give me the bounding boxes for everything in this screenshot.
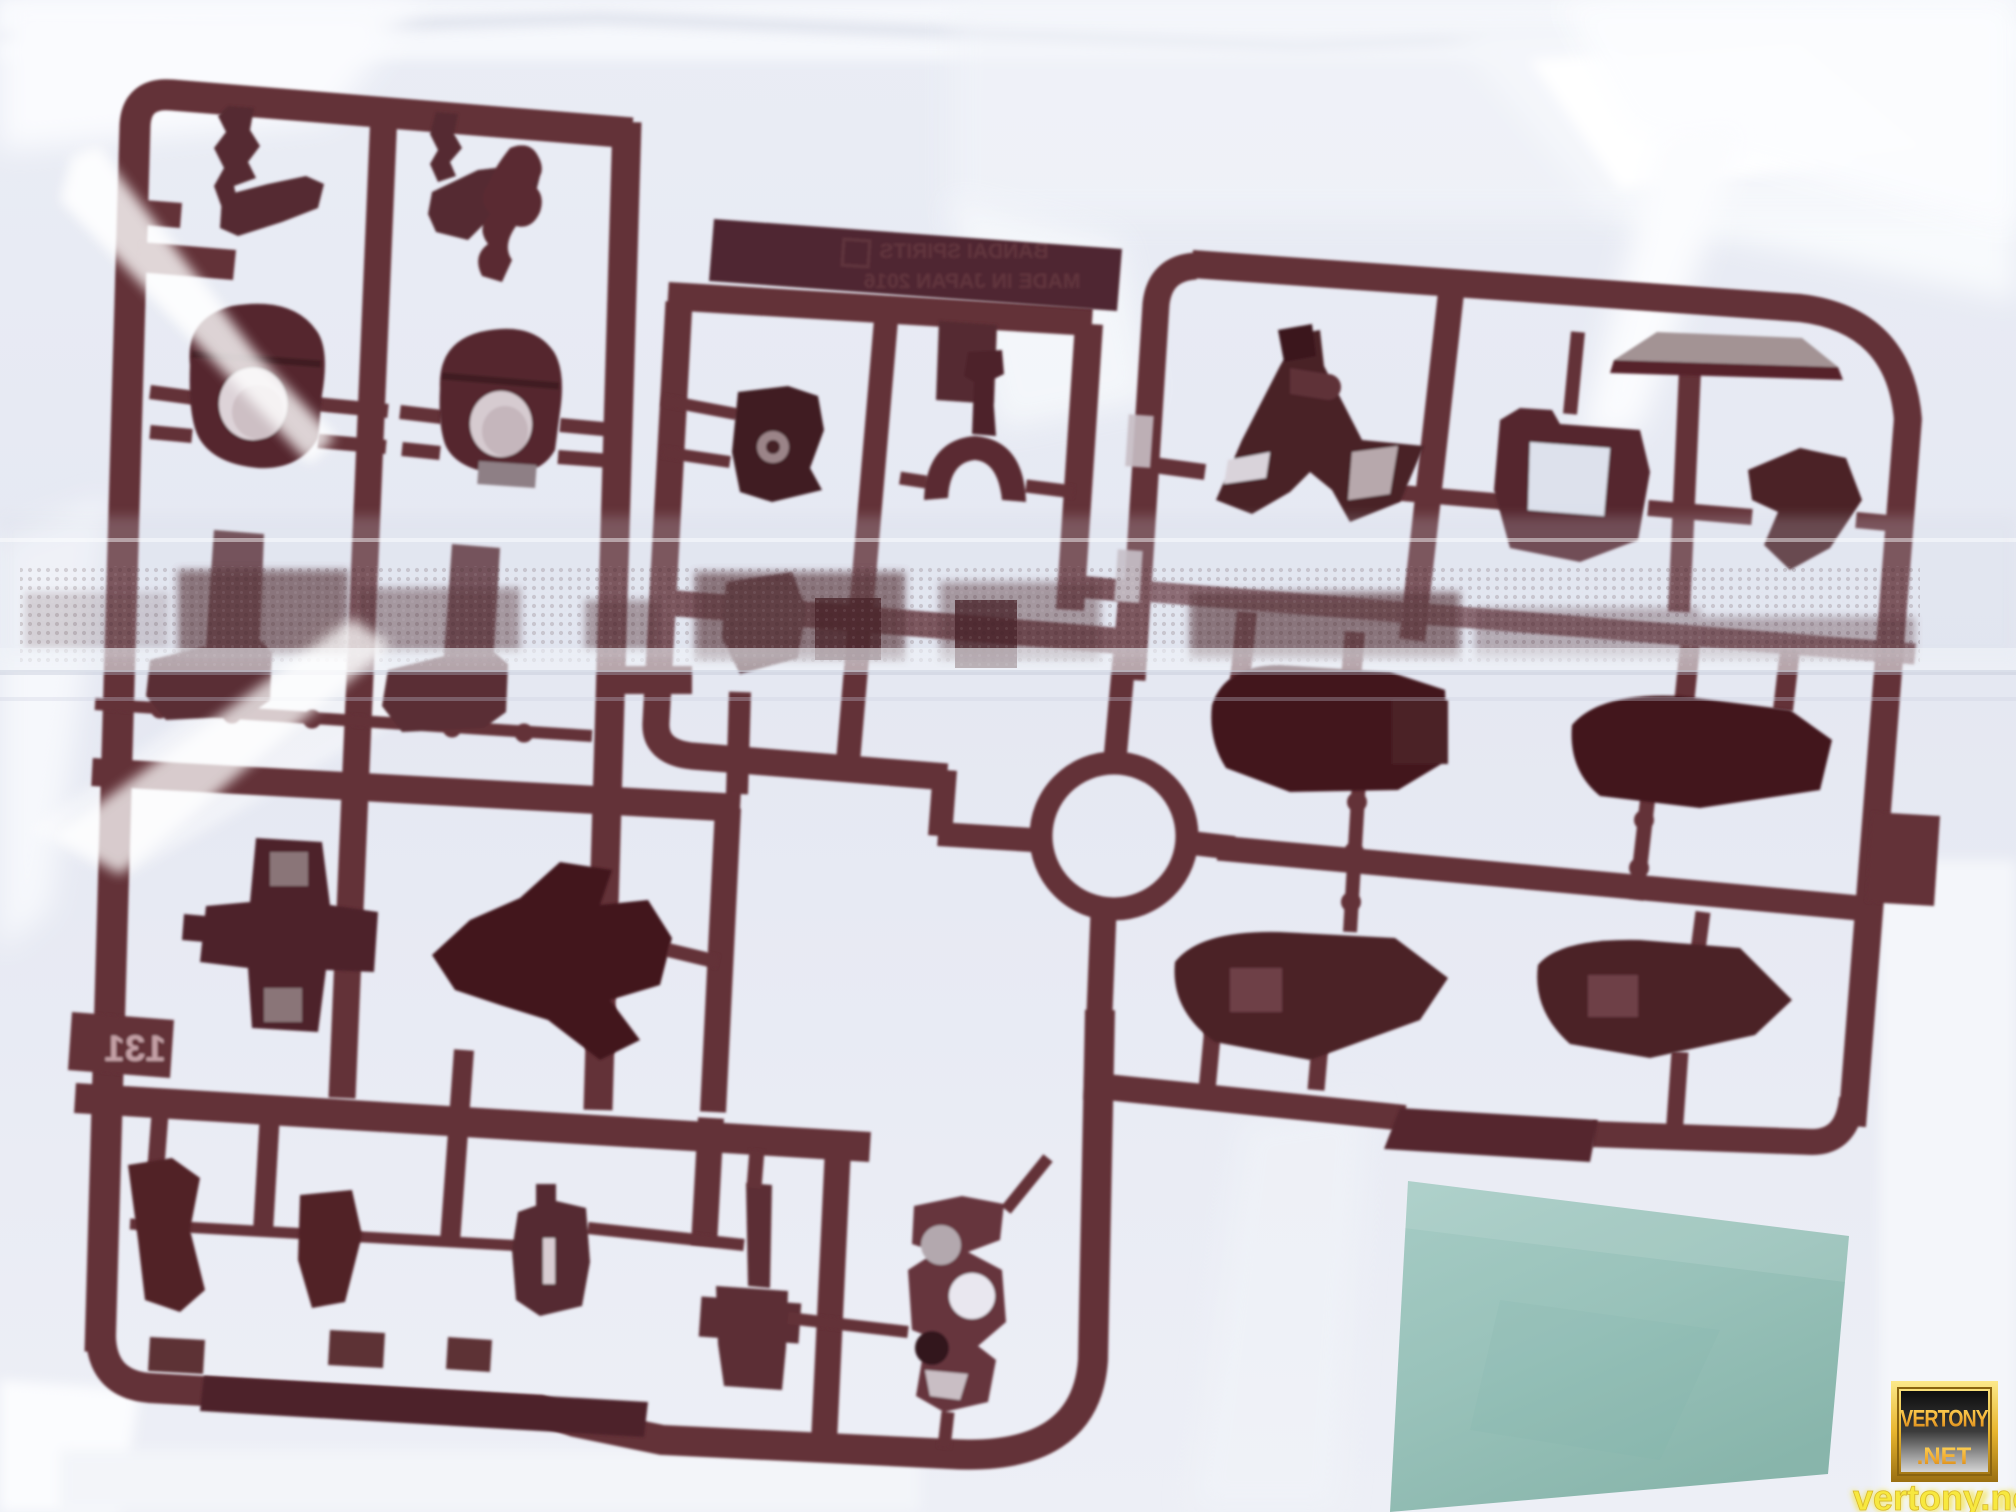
svg-text:.NET: .NET [1917,1443,1972,1470]
svg-text:131: 131 [104,1028,166,1069]
svg-text:BANDAI SPIRITS: BANDAI SPIRITS [879,240,1048,263]
svg-text:VERTONY: VERTONY [1900,1405,1989,1432]
svg-text:vertony.net: vertony.net [1853,1477,2016,1512]
svg-text:MADE IN JAPAN 2016: MADE IN JAPAN 2016 [864,270,1081,293]
